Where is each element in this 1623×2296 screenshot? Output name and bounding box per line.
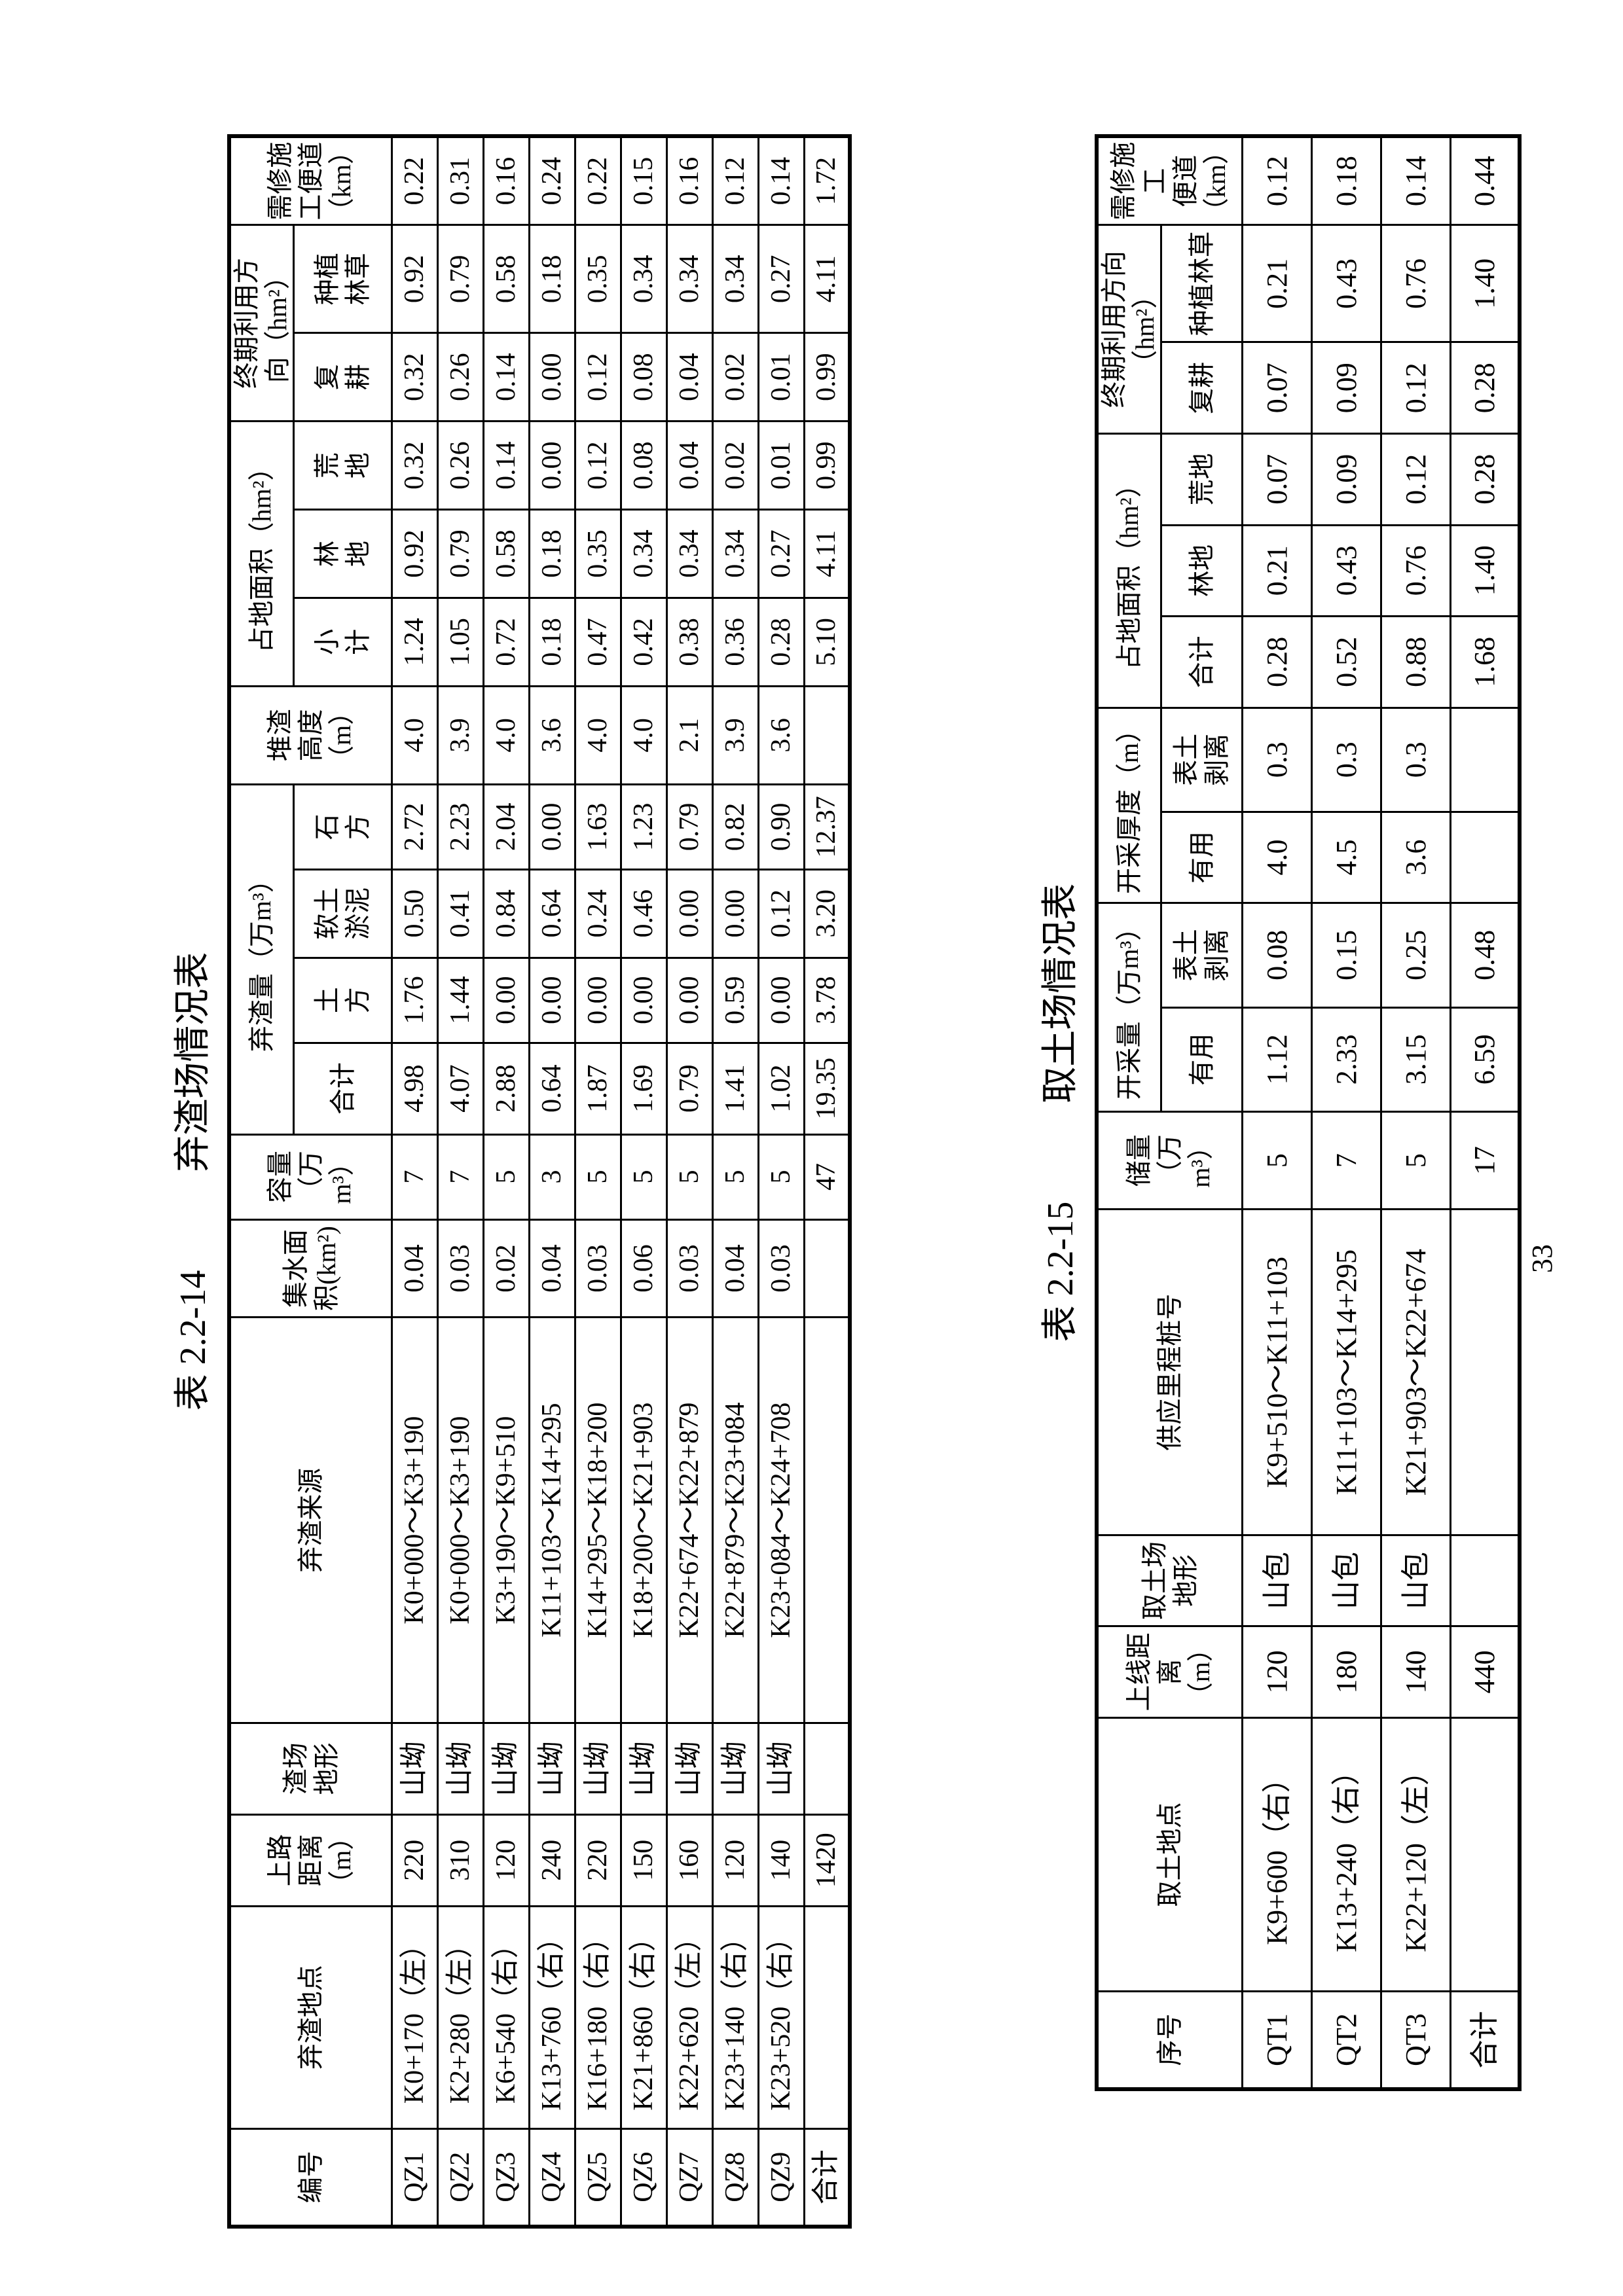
- data-cell: 0.14: [758, 136, 804, 225]
- data-cell: 山坳: [712, 1723, 758, 1814]
- data-cell: K0+000～K3+190: [437, 1318, 483, 1723]
- data-cell: 0.00: [666, 958, 712, 1043]
- header-thickness-stripping: 表土 剥离: [1161, 708, 1242, 812]
- data-cell: 0.50: [392, 869, 437, 958]
- data-cell: 0.34: [621, 225, 666, 333]
- data-cell: 2.72: [392, 784, 437, 869]
- data-cell: 0.09: [1311, 342, 1381, 434]
- data-cell: 160: [666, 1814, 712, 1906]
- table2-label: 表 2.2-15: [1041, 1202, 1082, 1342]
- data-cell: 3.9: [712, 686, 758, 784]
- data-cell: 0.34: [666, 225, 712, 333]
- header-area-group: 占地面积（hm²）: [229, 422, 294, 687]
- data-cell: 2.23: [437, 784, 483, 869]
- data-cell: 0.79: [666, 784, 712, 869]
- data-cell: 3.6: [758, 686, 804, 784]
- data-cell: 140: [758, 1814, 804, 1906]
- data-cell: K13+760（右）: [529, 1906, 575, 2128]
- data-cell: 5: [483, 1134, 529, 1219]
- header-location: 弃渣地点: [229, 1906, 392, 2128]
- data-cell: 0.00: [529, 333, 575, 422]
- header-supply-range: 供应里程桩号: [1097, 1210, 1243, 1535]
- data-cell: 0.04: [712, 1219, 758, 1318]
- data-cell: 0.07: [1242, 434, 1311, 526]
- data-cell: 0.92: [392, 225, 437, 333]
- data-cell: 0.00: [621, 958, 666, 1043]
- data-cell: 0.32: [392, 422, 437, 510]
- header-terrain: 取土场 地形: [1097, 1535, 1243, 1626]
- header-pile-height: 堆渣 高度 （m）: [229, 686, 392, 784]
- data-cell: 120: [712, 1814, 758, 1906]
- data-cell: K22+879～K23+084: [712, 1318, 758, 1723]
- data-cell: 0.59: [712, 958, 758, 1043]
- data-cell: 1.68: [1450, 617, 1520, 708]
- data-cell: 0.79: [666, 1043, 712, 1134]
- data-cell: 3.78: [804, 958, 850, 1043]
- data-cell: K13+240（右）: [1311, 1717, 1381, 1991]
- data-cell: 0.21: [1242, 225, 1311, 342]
- table1-row: QZ6K21+860（右）150山坳K18+200～K21+9030.0651.…: [621, 136, 666, 2227]
- header-id: 编号: [229, 2128, 392, 2227]
- data-cell: 5: [575, 1134, 621, 1219]
- header-forest-land: 林 地: [293, 510, 392, 598]
- document-page: 表 2.2-14 弃渣场情况表 编号 弃渣地点 上路 距离 （m） 渣场 地形 …: [0, 0, 1623, 2296]
- header-soft-soil: 软土 淤泥: [293, 869, 392, 958]
- data-cell: [804, 1906, 850, 2128]
- data-cell: 0.46: [621, 869, 666, 958]
- data-cell: 0.76: [1381, 525, 1450, 617]
- data-cell: [1450, 1717, 1520, 1991]
- data-cell: 0.79: [437, 510, 483, 598]
- data-cell: 0.12: [575, 422, 621, 510]
- data-cell: 山包: [1311, 1535, 1381, 1626]
- data-cell: 180: [1311, 1626, 1381, 1718]
- data-cell: 0.41: [437, 869, 483, 958]
- data-cell: 0.52: [1311, 617, 1381, 708]
- header-earthwork: 土 方: [293, 958, 392, 1043]
- data-cell: 0.99: [804, 333, 850, 422]
- data-cell: 0.04: [392, 1219, 437, 1318]
- data-cell: 140: [1381, 1626, 1450, 1718]
- data-cell: 220: [392, 1814, 437, 1906]
- data-cell: 3.20: [804, 869, 850, 958]
- data-cell: 0.16: [483, 136, 529, 225]
- data-cell: 1.40: [1450, 225, 1520, 342]
- waste-slag-table-block: 表 2.2-14 弃渣场情况表 编号 弃渣地点 上路 距离 （m） 渣场 地形 …: [173, 134, 852, 2229]
- data-cell: 0.64: [529, 869, 575, 958]
- data-cell: 0.32: [392, 333, 437, 422]
- data-cell: 3.9: [437, 686, 483, 784]
- data-cell: 0.44: [1450, 136, 1520, 225]
- data-cell: 0.18: [529, 225, 575, 333]
- header-reuse-group: 终期利用方 向（hm²）: [229, 225, 294, 422]
- data-cell: K11+103～K14+295: [1311, 1210, 1381, 1535]
- data-cell: 1.23: [621, 784, 666, 869]
- data-cell: 7: [392, 1134, 437, 1219]
- data-cell: 山坳: [437, 1723, 483, 1814]
- data-cell: 0.88: [1381, 617, 1450, 708]
- table2-row: QT3K22+120（左）140山包K21+903～K22+67453.150.…: [1381, 136, 1450, 2089]
- header-recultivation: 复 耕: [293, 333, 392, 422]
- data-cell: 0.34: [712, 510, 758, 598]
- data-cell: K11+103～K14+295: [529, 1318, 575, 1723]
- data-cell: 0.27: [758, 510, 804, 598]
- data-cell: 0.03: [666, 1219, 712, 1318]
- table2-row: 合计440176.590.481.681.400.280.281.400.44: [1450, 136, 1520, 2089]
- data-cell: 4.0: [1242, 812, 1311, 903]
- data-cell: 2.33: [1311, 1007, 1381, 1111]
- data-cell: 1.02: [758, 1043, 804, 1134]
- data-cell: [1450, 812, 1520, 903]
- data-cell: 0.12: [1381, 434, 1450, 526]
- data-cell: 0.00: [575, 958, 621, 1043]
- data-cell: 0.28: [1242, 617, 1311, 708]
- data-cell: K18+200～K21+903: [621, 1318, 666, 1723]
- data-cell: 0.22: [392, 136, 437, 225]
- data-cell: K6+540（右）: [483, 1906, 529, 2128]
- data-cell: 4.11: [804, 225, 850, 333]
- header-road-distance: 上路 距离 （m）: [229, 1814, 392, 1906]
- data-cell: 0.92: [392, 510, 437, 598]
- table1-row: QZ7K22+620（左）160山坳K22+674～K22+8790.0350.…: [666, 136, 712, 2227]
- data-cell: 山包: [1381, 1535, 1450, 1626]
- data-cell: 5: [666, 1134, 712, 1219]
- data-cell: 山坳: [758, 1723, 804, 1814]
- data-cell: 0.36: [712, 598, 758, 686]
- data-cell: 0.79: [437, 225, 483, 333]
- table2-row: QT1K9+600（右）120山包K9+510～K11+10351.120.08…: [1242, 136, 1311, 2089]
- data-cell: 山坳: [666, 1723, 712, 1814]
- data-cell: 0.47: [575, 598, 621, 686]
- data-cell: 1.41: [712, 1043, 758, 1134]
- data-cell: 0.02: [712, 422, 758, 510]
- data-cell: [804, 1219, 850, 1318]
- table1-label: 表 2.2-14: [173, 1270, 214, 1411]
- data-cell: 5: [1242, 1111, 1311, 1210]
- data-cell: 0.12: [1381, 342, 1450, 434]
- data-cell: 0.72: [483, 598, 529, 686]
- page-number: 33: [1525, 1244, 1559, 1273]
- data-cell: 2.04: [483, 784, 529, 869]
- data-cell: 3.6: [1381, 812, 1450, 903]
- data-cell: 0.28: [1450, 342, 1520, 434]
- header-waste-land: 荒 地: [293, 422, 392, 510]
- header-forest-land: 林地: [1161, 525, 1242, 617]
- table1-title: 弃渣场情况表: [173, 952, 214, 1172]
- data-cell: 0.26: [437, 333, 483, 422]
- table1-row: QZ3K6+540（右）120山坳K3+190～K9+5100.0252.880…: [483, 136, 529, 2227]
- data-cell: 0.04: [666, 422, 712, 510]
- data-cell: 0.42: [621, 598, 666, 686]
- header-source: 弃渣来源: [229, 1318, 392, 1723]
- data-cell: K21+903～K22+674: [1381, 1210, 1450, 1535]
- data-cell: 0.43: [1311, 525, 1381, 617]
- data-cell: 440: [1450, 1626, 1520, 1718]
- data-cell: 0.31: [437, 136, 483, 225]
- data-cell: 2.88: [483, 1043, 529, 1134]
- data-cell: 0.00: [529, 784, 575, 869]
- data-cell: K23+140（右）: [712, 1906, 758, 2128]
- data-cell: 0.12: [758, 869, 804, 958]
- data-cell: [1450, 1535, 1520, 1626]
- data-cell: K9+600（右）: [1242, 1717, 1311, 1991]
- table1-row: QZ4K13+760（右）240山坳K11+103～K14+2950.0430.…: [529, 136, 575, 2227]
- data-cell: 17: [1450, 1111, 1520, 1210]
- data-cell: 0.12: [712, 136, 758, 225]
- data-cell: K2+280（左）: [437, 1906, 483, 2128]
- data-cell: 山坳: [392, 1723, 437, 1814]
- data-cell: 0.00: [666, 869, 712, 958]
- data-cell: QZ6: [621, 2128, 666, 2227]
- data-cell: K22+620（左）: [666, 1906, 712, 2128]
- data-cell: 1.87: [575, 1043, 621, 1134]
- data-cell: 1.40: [1450, 525, 1520, 617]
- data-cell: 0.15: [1311, 903, 1381, 1007]
- data-cell: K14+295～K18+200: [575, 1318, 621, 1723]
- data-cell: 310: [437, 1814, 483, 1906]
- data-cell: 山坳: [575, 1723, 621, 1814]
- data-cell: QZ9: [758, 2128, 804, 2227]
- data-cell: 0.01: [758, 333, 804, 422]
- header-line-distance: 上线距 离 （m）: [1097, 1626, 1243, 1718]
- data-cell: QT2: [1311, 1992, 1381, 2090]
- data-cell: [804, 1318, 850, 1723]
- data-cell: 4.11: [804, 510, 850, 598]
- data-cell: 0.04: [666, 333, 712, 422]
- data-cell: 0.48: [1450, 903, 1520, 1007]
- data-cell: 0.21: [1242, 525, 1311, 617]
- data-cell: 合计: [1450, 1992, 1520, 2090]
- data-cell: 150: [621, 1814, 666, 1906]
- data-cell: 1420: [804, 1814, 850, 1906]
- header-reserve: 储量 （万 m³）: [1097, 1111, 1243, 1210]
- header-area-group: 占地面积（hm²）: [1097, 434, 1161, 708]
- data-cell: 4.0: [483, 686, 529, 784]
- borrow-pit-table: 序号 取土地点 上线距 离 （m） 取土场 地形 供应里程桩号 储量 （万 m³…: [1095, 134, 1522, 2091]
- data-cell: 0.99: [804, 422, 850, 510]
- data-cell: 山坳: [621, 1723, 666, 1814]
- table1-row: QZ2K2+280（左）310山坳K0+000～K3+1900.0374.071…: [437, 136, 483, 2227]
- data-cell: QZ1: [392, 2128, 437, 2227]
- table1-row: QZ8K23+140（右）120山坳K22+879～K23+0840.0451.…: [712, 136, 758, 2227]
- data-cell: K23+084～K24+708: [758, 1318, 804, 1723]
- header-waste-land: 荒地: [1161, 434, 1242, 526]
- data-cell: 0.82: [712, 784, 758, 869]
- borrow-pit-table-block: 表 2.2-15 取土场情况表 序号 取土地点 上线距 离 （m） 取土场 地形…: [1041, 134, 1522, 2091]
- data-cell: 0.12: [1242, 136, 1311, 225]
- data-cell: 220: [575, 1814, 621, 1906]
- data-cell: 0.03: [758, 1219, 804, 1318]
- header-volume-total: 合计: [293, 1043, 392, 1134]
- data-cell: 5: [621, 1134, 666, 1219]
- data-cell: 2.1: [666, 686, 712, 784]
- data-cell: 0.03: [437, 1219, 483, 1318]
- data-cell: 0.09: [1311, 434, 1381, 526]
- data-cell: 0.18: [1311, 136, 1381, 225]
- data-cell: QT3: [1381, 1992, 1450, 2090]
- table1-row: QZ9K23+520（右）140山坳K23+084～K24+7080.0351.…: [758, 136, 804, 2227]
- data-cell: K22+120（左）: [1381, 1717, 1450, 1991]
- data-cell: 0.84: [483, 869, 529, 958]
- data-cell: 0.34: [621, 510, 666, 598]
- data-cell: 3.6: [529, 686, 575, 784]
- header-thickness-useful: 有用: [1161, 812, 1242, 903]
- table1-row: QZ1K0+170（左）220山坳K0+000～K3+1900.0474.981…: [392, 136, 437, 2227]
- data-cell: 5: [758, 1134, 804, 1219]
- data-cell: K23+520（右）: [758, 1906, 804, 2128]
- data-cell: QZ3: [483, 2128, 529, 2227]
- data-cell: 0.08: [1242, 903, 1311, 1007]
- data-cell: 6.59: [1450, 1007, 1520, 1111]
- data-cell: QZ2: [437, 2128, 483, 2227]
- data-cell: 120: [483, 1814, 529, 1906]
- data-cell: 4.0: [621, 686, 666, 784]
- data-cell: 4.98: [392, 1043, 437, 1134]
- data-cell: 山坳: [483, 1723, 529, 1814]
- data-cell: 1.05: [437, 598, 483, 686]
- data-cell: K16+180（右）: [575, 1906, 621, 2128]
- header-rockwork: 石 方: [293, 784, 392, 869]
- waste-slag-table: 编号 弃渣地点 上路 距离 （m） 渣场 地形 弃渣来源 集水面 积(km²) …: [227, 134, 852, 2229]
- header-planting: 种植 林草: [293, 225, 392, 333]
- data-cell: K0+170（左）: [392, 1906, 437, 2128]
- data-cell: 1.44: [437, 958, 483, 1043]
- data-cell: 0.26: [437, 422, 483, 510]
- data-cell: K3+190～K9+510: [483, 1318, 529, 1723]
- data-cell: K9+510～K11+103: [1242, 1210, 1311, 1535]
- table2-title: 取土场情况表: [1041, 884, 1082, 1103]
- header-volume-group: 弃渣量（万m³）: [229, 784, 294, 1134]
- header-capacity: 容量 （万 m³）: [229, 1134, 392, 1219]
- data-cell: 47: [804, 1134, 850, 1219]
- table2-caption: 表 2.2-15 取土场情况表: [1041, 134, 1082, 2091]
- header-planting: 种植林草: [1161, 225, 1242, 342]
- data-cell: K21+860（右）: [621, 1906, 666, 2128]
- data-cell: 0.00: [483, 958, 529, 1043]
- table1-caption: 表 2.2-14 弃渣场情况表: [173, 134, 214, 2229]
- data-cell: 1.63: [575, 784, 621, 869]
- data-cell: 0.00: [529, 422, 575, 510]
- data-cell: 1.69: [621, 1043, 666, 1134]
- data-cell: 0.12: [575, 333, 621, 422]
- data-cell: 0.14: [483, 333, 529, 422]
- data-cell: 0.02: [483, 1219, 529, 1318]
- data-cell: 0.43: [1311, 225, 1381, 342]
- data-cell: QZ8: [712, 2128, 758, 2227]
- data-cell: 5: [1381, 1111, 1450, 1210]
- data-cell: 0.27: [758, 225, 804, 333]
- data-cell: 1.12: [1242, 1007, 1311, 1111]
- data-cell: 0.3: [1242, 708, 1311, 812]
- data-cell: 0.35: [575, 510, 621, 598]
- header-mining-useful: 有用: [1161, 1007, 1242, 1111]
- data-cell: QT1: [1242, 1992, 1311, 2090]
- header-location: 取土地点: [1097, 1717, 1243, 1991]
- data-cell: 0.25: [1381, 903, 1450, 1007]
- data-cell: 7: [437, 1134, 483, 1219]
- header-terrain: 渣场 地形: [229, 1723, 392, 1814]
- data-cell: 0.24: [575, 869, 621, 958]
- data-cell: 0.18: [529, 598, 575, 686]
- header-area-subtotal: 小 计: [293, 598, 392, 686]
- data-cell: [804, 686, 850, 784]
- data-cell: 7: [1311, 1111, 1381, 1210]
- data-cell: QZ4: [529, 2128, 575, 2227]
- data-cell: 240: [529, 1814, 575, 1906]
- data-cell: 3.15: [1381, 1007, 1450, 1111]
- data-cell: 1.76: [392, 958, 437, 1043]
- data-cell: 0.28: [758, 598, 804, 686]
- data-cell: 0.15: [621, 136, 666, 225]
- header-thickness-group: 开采厚度（m）: [1097, 708, 1161, 903]
- data-cell: 0.00: [529, 958, 575, 1043]
- data-cell: 4.0: [575, 686, 621, 784]
- data-cell: 19.35: [804, 1043, 850, 1134]
- data-cell: 0.38: [666, 598, 712, 686]
- header-catchment: 集水面 积(km²): [229, 1219, 392, 1318]
- data-cell: 山包: [1242, 1535, 1311, 1626]
- data-cell: [1450, 708, 1520, 812]
- data-cell: 0.14: [483, 422, 529, 510]
- header-mining-stripping: 表土 剥离: [1161, 903, 1242, 1007]
- data-cell: 0.00: [712, 869, 758, 958]
- data-cell: 0.00: [758, 958, 804, 1043]
- data-cell: 0.34: [666, 510, 712, 598]
- data-cell: 0.07: [1242, 342, 1311, 434]
- table1-row: QZ5K16+180（右）220山坳K14+295～K18+2000.0351.…: [575, 136, 621, 2227]
- data-cell: 0.28: [1450, 434, 1520, 526]
- data-cell: 120: [1242, 1626, 1311, 1718]
- data-cell: 0.18: [529, 510, 575, 598]
- data-cell: 5.10: [804, 598, 850, 686]
- data-cell: K0+000～K3+190: [392, 1318, 437, 1723]
- data-cell: 0.3: [1381, 708, 1450, 812]
- data-cell: QZ5: [575, 2128, 621, 2227]
- data-cell: 5: [712, 1134, 758, 1219]
- data-cell: 0.58: [483, 510, 529, 598]
- header-access-road: 需修施 工便道 （km）: [229, 136, 392, 225]
- header-recultivation: 复耕: [1161, 342, 1242, 434]
- data-cell: 0.14: [1381, 136, 1450, 225]
- data-cell: 0.76: [1381, 225, 1450, 342]
- data-cell: 0.03: [575, 1219, 621, 1318]
- data-cell: 0.90: [758, 784, 804, 869]
- data-cell: 0.24: [529, 136, 575, 225]
- data-cell: 0.06: [621, 1219, 666, 1318]
- data-cell: 0.64: [529, 1043, 575, 1134]
- data-cell: 0.08: [621, 333, 666, 422]
- data-cell: 0.35: [575, 225, 621, 333]
- table1-row: 合计14204719.353.783.2012.375.104.110.990.…: [804, 136, 850, 2227]
- data-cell: QZ7: [666, 2128, 712, 2227]
- data-cell: 0.3: [1311, 708, 1381, 812]
- data-cell: 0.34: [712, 225, 758, 333]
- data-cell: 0.02: [712, 333, 758, 422]
- table2-row: QT2K13+240（右）180山包K11+103～K14+29572.330.…: [1311, 136, 1381, 2089]
- header-reuse-group: 终期利用方向 （hm²）: [1097, 225, 1161, 434]
- data-cell: 0.01: [758, 422, 804, 510]
- data-cell: 1.24: [392, 598, 437, 686]
- data-cell: 1.72: [804, 136, 850, 225]
- data-cell: 3: [529, 1134, 575, 1219]
- data-cell: K22+674～K22+879: [666, 1318, 712, 1723]
- data-cell: 0.58: [483, 225, 529, 333]
- header-id: 序号: [1097, 1992, 1243, 2090]
- header-mining-group: 开采量（万m³）: [1097, 903, 1161, 1112]
- data-cell: 合计: [804, 2128, 850, 2227]
- header-access-road: 需修施工 便道（km）: [1097, 136, 1243, 225]
- data-cell: 0.16: [666, 136, 712, 225]
